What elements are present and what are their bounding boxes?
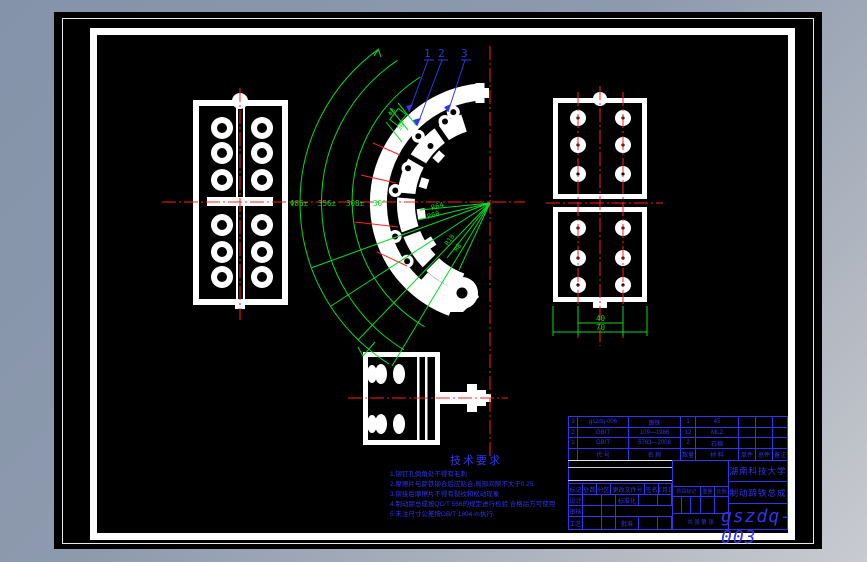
tb-material-mark-area: [672, 460, 729, 487]
svg-text:70: 70: [596, 323, 606, 332]
tb-cell-empty: [601, 516, 616, 530]
svg-text:R68: R68: [426, 210, 440, 221]
callout-3: 3: [461, 47, 468, 60]
technical-requirements: 技术要求 1.铆钉孔倒角处不得有毛刺 2.摩擦片与蹄铁铆合后应贴合,局部间隙不大…: [390, 452, 562, 520]
tech-req-line: 1.铆钉孔倒角处不得有毛刺: [390, 470, 562, 480]
center-view-brake-shoe: [370, 83, 489, 316]
tech-req-line: 3.铆接后摩擦片不得有裂纹和松动现象: [390, 490, 562, 500]
svg-text:R8: R8: [452, 242, 463, 253]
tb-school-name: 湖南科技大学: [728, 460, 788, 482]
svg-text:30°: 30°: [373, 199, 387, 208]
callout-1: 1: [424, 47, 431, 60]
title-block-line: [568, 480, 672, 481]
tb-drawing-number: gszdq-003: [721, 506, 792, 548]
tb-label-craft: 工艺: [568, 516, 583, 530]
tb-label-approve: 批准: [615, 516, 639, 530]
tb-cell-empty: [700, 496, 715, 514]
callout-2: 2: [438, 47, 445, 60]
tb-drawing-title: 制动蹄铁总成: [728, 481, 788, 504]
tb-cell-empty: [657, 516, 672, 530]
svg-text:40: 40: [596, 314, 606, 323]
tech-req-line: 2.摩擦片与蹄铁铆合后应贴合,局部间隙不大于0.25: [390, 480, 562, 490]
title-block-line: [568, 467, 672, 468]
tech-req-line: 5.未注尺寸公差按GB/T 1804-m执行.: [390, 510, 562, 520]
tech-req-line: 4.制动蹄总成按QC/T 556的规定进行检验,合格后方可使用: [390, 500, 562, 510]
bottom-view: [366, 355, 492, 443]
tb-cell-empty: [638, 516, 658, 530]
svg-text:308±: 308±: [346, 199, 365, 208]
technical-requirements-title: 技术要求: [390, 452, 562, 468]
tb-cell-empty: [582, 516, 602, 530]
svg-text:Φ86±: Φ86±: [290, 199, 309, 208]
svg-text:356±: 356±: [318, 199, 337, 208]
cad-viewer-stage: Φ86± 356± 308± 30° R64 R68 R10 R8 Φ8 30°…: [0, 0, 867, 562]
